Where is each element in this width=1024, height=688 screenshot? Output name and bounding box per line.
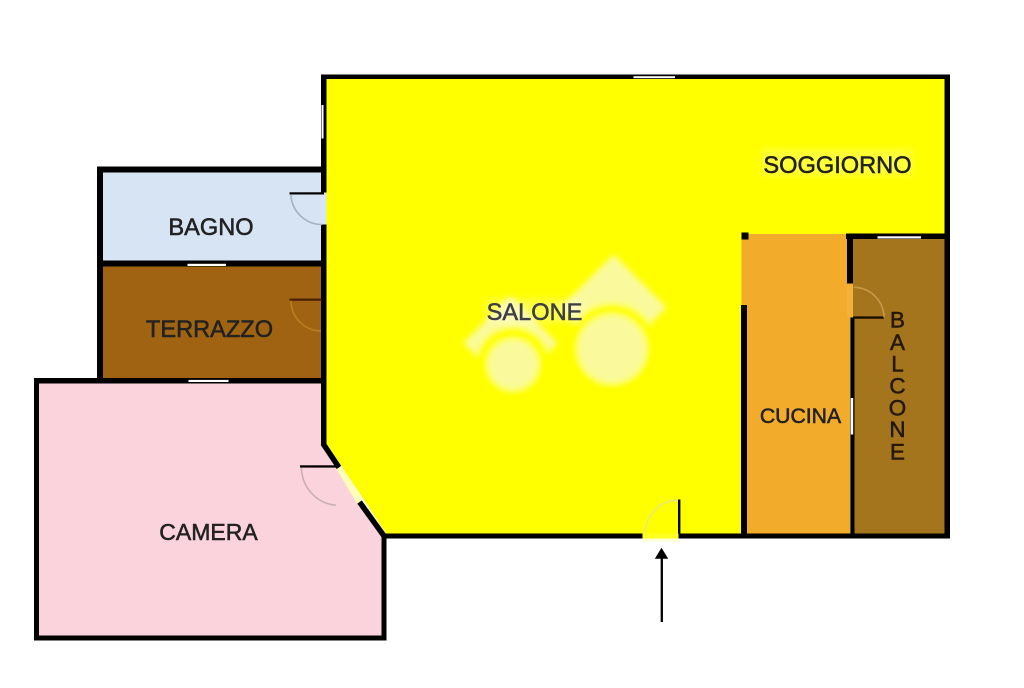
- svg-text:SOGGIORNO: SOGGIORNO: [763, 153, 911, 179]
- svg-text:N: N: [889, 417, 905, 442]
- svg-text:SALONE: SALONE: [487, 300, 583, 326]
- svg-text:CAMERA: CAMERA: [159, 519, 258, 545]
- svg-text:E: E: [890, 439, 905, 464]
- svg-text:TERRAZZO: TERRAZZO: [146, 317, 273, 343]
- svg-text:BAGNO: BAGNO: [168, 215, 253, 241]
- svg-text:CUCINA: CUCINA: [760, 405, 842, 428]
